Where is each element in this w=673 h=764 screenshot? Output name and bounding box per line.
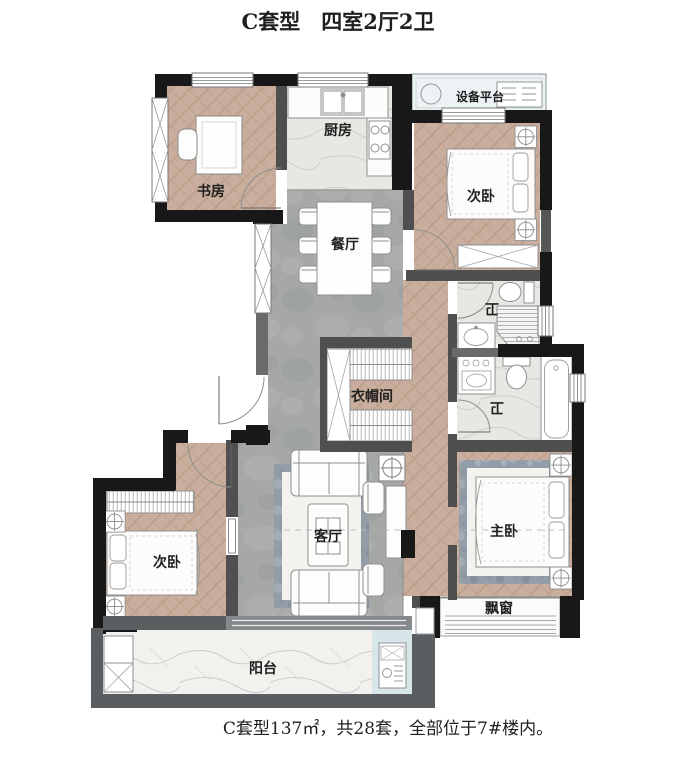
- hall-floor-2: [268, 337, 320, 452]
- wall: [253, 210, 283, 224]
- wall: [448, 545, 457, 600]
- armchair: [363, 482, 384, 514]
- dining-chair: [299, 237, 319, 254]
- armchair: [363, 564, 384, 596]
- bay-window-label: 飘窗: [485, 600, 513, 617]
- balcony-cabinet: [104, 636, 133, 692]
- wall: [256, 313, 268, 375]
- wall: [226, 440, 238, 517]
- dining-chair: [371, 266, 391, 283]
- door-entry: [219, 376, 264, 424]
- wall: [412, 634, 435, 706]
- kitchen-label: 厨房: [324, 122, 352, 139]
- floor-plan: C套型 四室2厅2卫: [0, 0, 673, 764]
- wall: [91, 694, 435, 708]
- wall: [320, 337, 327, 452]
- nightstand: [104, 511, 125, 532]
- wall: [320, 441, 412, 452]
- washing-machine: [379, 643, 406, 688]
- end-table: [379, 455, 405, 481]
- window-hall-west: [255, 224, 271, 313]
- study-chair: [178, 129, 197, 160]
- window-bath-upper: [538, 306, 553, 336]
- wall: [392, 74, 412, 190]
- column: [401, 530, 415, 558]
- bedroom-sw-label: 次卧: [153, 554, 181, 571]
- sink-lower: [458, 356, 495, 394]
- bath-upper-label: 卫: [485, 300, 499, 316]
- wall: [448, 440, 584, 452]
- study-desk: [196, 116, 242, 174]
- door-balcony-end: [416, 608, 434, 634]
- pillow: [513, 153, 528, 181]
- window-bedroom-ne-top: [442, 108, 505, 123]
- wall: [403, 190, 414, 230]
- wall: [541, 210, 551, 252]
- balcony-label: 阳台: [249, 660, 277, 677]
- dining-chair: [299, 208, 319, 225]
- wall: [226, 555, 238, 618]
- wall: [276, 86, 287, 170]
- study-label: 书房: [197, 183, 225, 200]
- master-label: 主卧: [490, 523, 518, 540]
- wall: [452, 348, 502, 357]
- wall: [406, 270, 548, 281]
- wall: [448, 314, 457, 402]
- nightstand: [550, 567, 572, 589]
- wall: [155, 210, 265, 222]
- wall: [320, 337, 412, 348]
- wall: [231, 430, 270, 443]
- wall: [560, 596, 580, 638]
- shower: [497, 306, 539, 346]
- window-kitchen-top: [298, 73, 368, 87]
- dining-chair: [371, 208, 391, 225]
- bathtub: [541, 356, 572, 442]
- caption: C套型137㎡，共28套，全部位于7#楼内。: [223, 719, 553, 739]
- page-title: C套型 四室2厅2卫: [242, 9, 435, 34]
- window-study-left: [152, 98, 168, 202]
- master-door-gap: [448, 507, 457, 545]
- bedroom-ne-label: 次卧: [467, 188, 495, 205]
- nightstand: [515, 219, 537, 241]
- wall: [155, 74, 167, 98]
- pillow: [549, 482, 564, 518]
- wall: [448, 452, 457, 507]
- wall: [540, 110, 552, 210]
- wall: [103, 616, 226, 630]
- wall: [498, 344, 584, 357]
- door-bedroom-sw-east: [226, 517, 238, 555]
- closet-cloakroom: [327, 349, 350, 441]
- nightstand: [550, 454, 572, 476]
- wall: [540, 252, 552, 306]
- balcony-slider: [226, 616, 412, 630]
- floorplan-page: C套型 四室2厅2卫: [0, 0, 673, 764]
- window-bath-lower: [570, 374, 585, 402]
- nightstand: [515, 126, 537, 148]
- wall: [368, 74, 392, 86]
- living-label: 客厅: [313, 528, 342, 545]
- wardrobe-sw: [107, 491, 194, 513]
- wall: [93, 478, 106, 634]
- toilet-upper: [499, 282, 534, 303]
- pillow: [110, 535, 126, 561]
- equipment-platform-label: 设备平台: [456, 89, 504, 104]
- master-furniture: [459, 454, 572, 589]
- dining-chair: [299, 266, 319, 283]
- wall: [406, 110, 442, 123]
- pillow: [110, 563, 126, 589]
- wall: [572, 402, 584, 600]
- wall: [572, 344, 584, 374]
- pillow: [513, 184, 528, 212]
- nightstand: [104, 596, 125, 617]
- dining-chair: [371, 237, 391, 254]
- dining-label: 餐厅: [330, 236, 359, 253]
- pillow: [549, 522, 564, 558]
- window-study-top: [192, 73, 253, 87]
- wardrobe-ne: [458, 245, 538, 268]
- wall: [253, 74, 298, 86]
- cloakroom-label: 衣帽间: [351, 388, 393, 405]
- sink-upper: [458, 323, 495, 350]
- bath-lower-label: 卫: [490, 399, 504, 415]
